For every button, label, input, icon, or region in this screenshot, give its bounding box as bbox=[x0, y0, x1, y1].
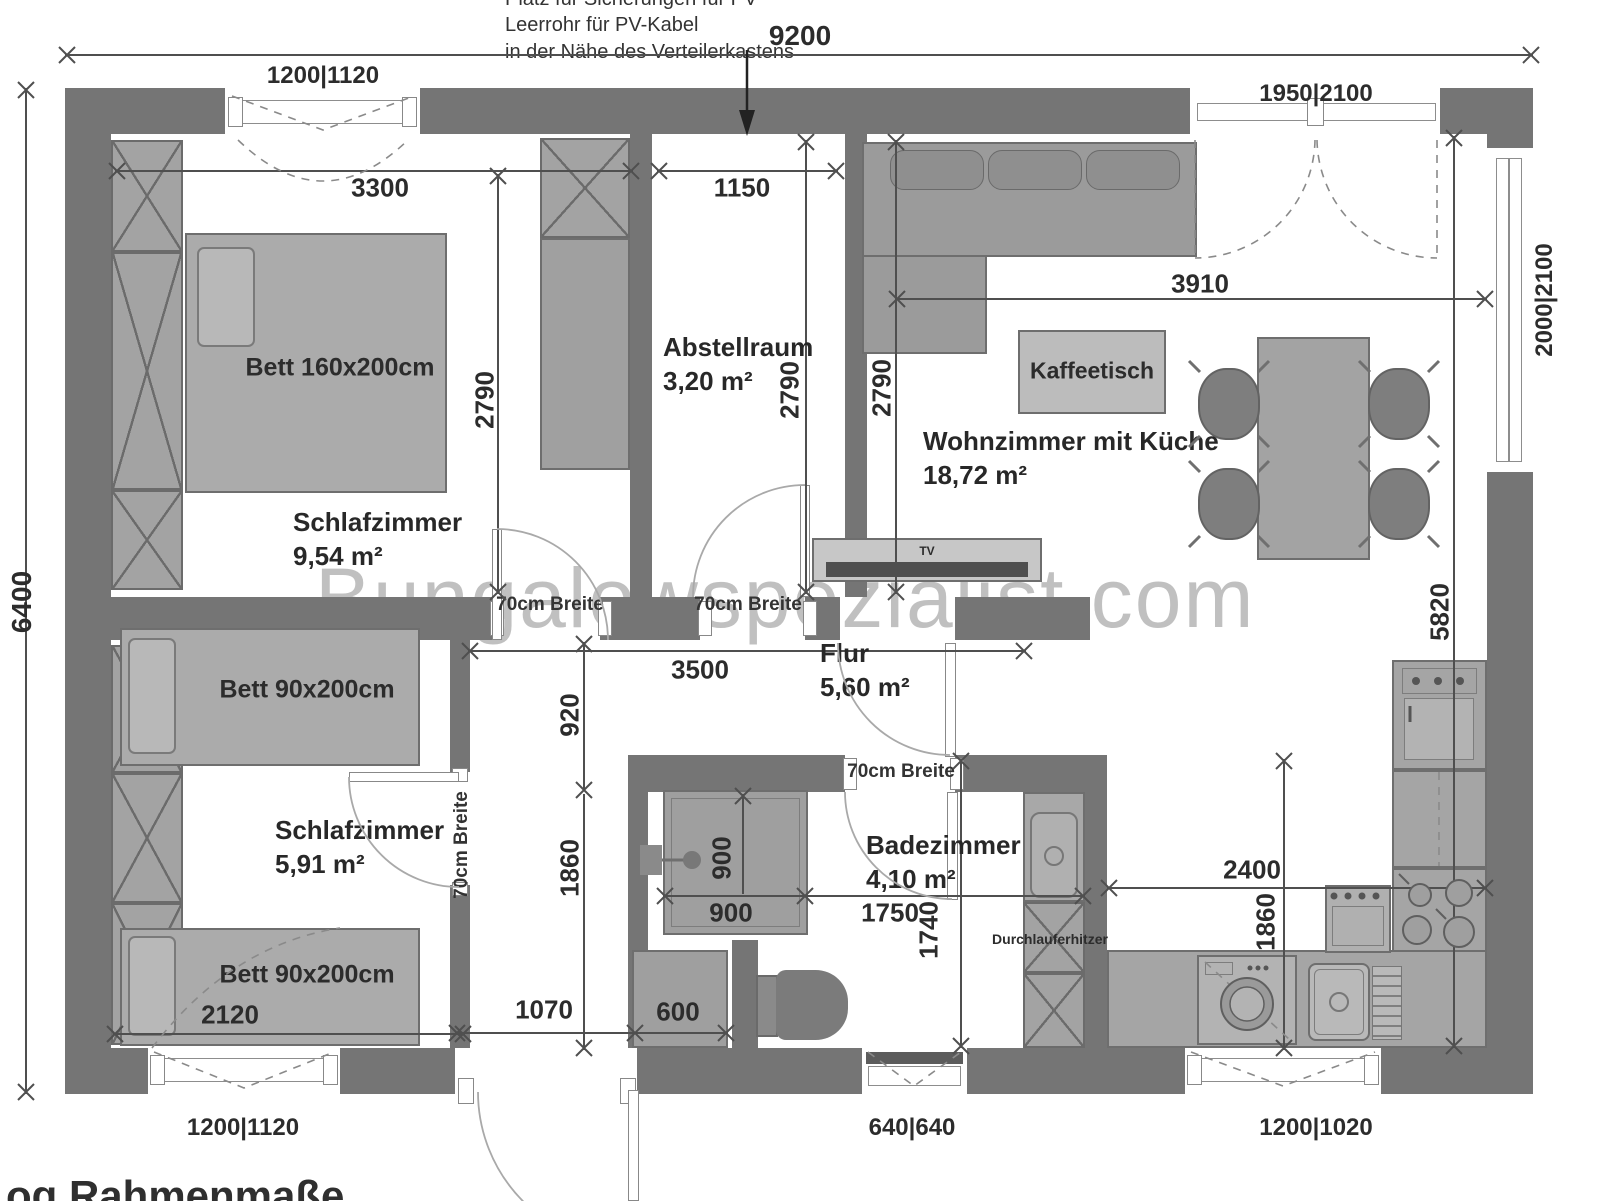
appliance-panel-icon bbox=[1402, 668, 1477, 694]
oven-tower-door-icon bbox=[1404, 698, 1474, 760]
dim: 3300 bbox=[351, 173, 409, 204]
door-width-label: 70cm Breite bbox=[496, 594, 604, 616]
sink-bowl-icon bbox=[1314, 969, 1364, 1035]
chair-icon bbox=[1368, 468, 1430, 540]
pv-note-line3: in der Nähe des Verteilerkastens bbox=[505, 39, 794, 65]
oven-door-icon bbox=[1332, 906, 1384, 946]
room-area: 5,60 m² bbox=[820, 670, 910, 704]
dim-total-width: 9200 bbox=[769, 20, 831, 52]
dim-line bbox=[1107, 887, 1487, 889]
pv-note-line2: Leerrohr für PV-Kabel bbox=[505, 12, 794, 38]
toilet-cistern-icon bbox=[756, 975, 778, 1037]
dim-line bbox=[960, 759, 962, 1048]
window-kitchen-frame bbox=[1199, 1058, 1367, 1082]
entrance-door-gap bbox=[455, 1048, 637, 1094]
cabinet-icon bbox=[540, 238, 630, 470]
washbasin-icon bbox=[1030, 812, 1078, 898]
wardrobe-icon bbox=[111, 140, 183, 252]
wall-bath-top-b bbox=[955, 755, 1107, 792]
window-right-mid-line bbox=[1508, 158, 1510, 462]
window-bottom-left-jamb-r bbox=[323, 1055, 338, 1085]
pv-note-line1: Platz für Sicherungen für PV bbox=[505, 0, 794, 12]
room-area: 5,91 m² bbox=[275, 847, 444, 881]
room-storage-label: Abstellraum 3,20 m² bbox=[663, 330, 813, 399]
dim: 1740 bbox=[914, 901, 945, 959]
drainer-icon bbox=[1372, 966, 1402, 1040]
wall-bath-top-a bbox=[628, 755, 845, 792]
dim-line bbox=[455, 1032, 728, 1034]
wardrobe-icon bbox=[540, 138, 630, 238]
dim: 600 bbox=[656, 997, 699, 1028]
sofa-cushion-icon bbox=[1086, 150, 1180, 190]
cooktop-icon bbox=[1392, 868, 1487, 960]
dim-line bbox=[742, 794, 744, 894]
door3-leaf bbox=[349, 772, 459, 782]
dim: 920 bbox=[555, 693, 586, 736]
pillow-icon bbox=[128, 936, 176, 1036]
dim-line bbox=[1283, 759, 1285, 1050]
entrance-door-leaf bbox=[628, 1090, 639, 1201]
bottom-note: og Rahmenmaße bbox=[6, 1172, 344, 1201]
room-area: 4,10 m² bbox=[866, 862, 1021, 896]
sofa-cushion-icon bbox=[988, 150, 1082, 190]
bed-single-label: Bett 90x200cm bbox=[219, 676, 394, 705]
room-bath-label: Badezimmer 4,10 m² bbox=[866, 828, 1021, 897]
wall-bath-right bbox=[1085, 792, 1107, 1048]
window-kitchen-jamb-r bbox=[1364, 1055, 1379, 1085]
washer-drawer-icon bbox=[1205, 962, 1233, 975]
dining-table-icon bbox=[1257, 337, 1370, 560]
fridge-icon bbox=[1392, 770, 1487, 868]
wall-hall-4 bbox=[955, 597, 1090, 640]
dim: 900 bbox=[707, 836, 738, 879]
dim: 2400 bbox=[1223, 855, 1281, 886]
chair-icon bbox=[1368, 368, 1430, 440]
room-name: Badezimmer bbox=[866, 828, 1021, 862]
floor-plan: Bungalowspezialist.com Platz für Sicheru… bbox=[0, 0, 1600, 1201]
room-name: Abstellraum bbox=[663, 330, 813, 364]
room-bedroom1-label: Schlafzimmer 9,54 m² bbox=[293, 505, 462, 574]
dim-line bbox=[113, 1033, 465, 1035]
wardrobe-icon bbox=[111, 490, 183, 590]
win-label: 2000|2100 bbox=[1531, 243, 1559, 357]
wall-bedroom2-a bbox=[450, 640, 470, 772]
wall-bedroom1-storage bbox=[630, 134, 652, 597]
door2-jamb-r bbox=[803, 601, 817, 636]
water-heater-label: Durchlauferhitzer bbox=[992, 931, 1108, 947]
shower-fitting-icon bbox=[640, 845, 662, 875]
water-heater-cabinet-icon bbox=[1023, 973, 1085, 1048]
toilet-icon bbox=[776, 970, 848, 1040]
wardrobe-icon bbox=[111, 252, 183, 490]
bed-single-label: Bett 90x200cm bbox=[219, 961, 394, 990]
dim: 1860 bbox=[1251, 893, 1282, 951]
room-name: Schlafzimmer bbox=[275, 813, 444, 847]
pillow-icon bbox=[128, 638, 176, 754]
wall-wc-divider bbox=[732, 940, 758, 1048]
win-label: 640|640 bbox=[869, 1114, 956, 1142]
dim: 1750 bbox=[861, 898, 919, 929]
window-kitchen-jamb-l bbox=[1187, 1055, 1202, 1085]
dim: 3910 bbox=[1171, 269, 1229, 300]
room-name: Flur bbox=[820, 636, 910, 670]
wall-left bbox=[65, 88, 111, 1094]
door-width-label: 70cm Breite bbox=[451, 791, 473, 899]
dim-line bbox=[468, 650, 1026, 652]
window-bath-frame bbox=[868, 1066, 961, 1086]
door-living-leaf bbox=[945, 643, 956, 757]
dim: 1150 bbox=[714, 173, 770, 204]
kitchen-counter-icon bbox=[1107, 950, 1487, 1048]
tv-label: TV bbox=[919, 544, 934, 558]
pillow-icon bbox=[197, 247, 255, 347]
door-width-label: 70cm Breite bbox=[694, 594, 802, 616]
dim: 5820 bbox=[1425, 583, 1456, 641]
dim: 2790 bbox=[867, 359, 898, 417]
dim-line bbox=[65, 54, 1533, 56]
dim-line bbox=[583, 794, 585, 1050]
door-label: 1950|2100 bbox=[1259, 80, 1373, 108]
dim: 3500 bbox=[671, 655, 729, 686]
coffee-table-label: Kaffeetisch bbox=[1030, 358, 1154, 385]
dim-total-height: 6400 bbox=[6, 571, 38, 633]
wall-hall-2 bbox=[600, 597, 700, 640]
room-bedroom2-label: Schlafzimmer 5,91 m² bbox=[275, 813, 444, 882]
window-bottom-left-jamb-l bbox=[150, 1055, 165, 1085]
door-width-label: 70cm Breite bbox=[847, 761, 955, 783]
window-top-left-jamb-l bbox=[228, 97, 243, 127]
bed-double-label: Bett 160x200cm bbox=[245, 354, 434, 383]
wardrobe-icon bbox=[111, 773, 183, 903]
dim: 2120 bbox=[201, 1000, 259, 1031]
dim: 2790 bbox=[470, 371, 501, 429]
room-living-label: Wohnzimmer mit Küche 18,72 m² bbox=[923, 424, 1219, 493]
win-label: 1200|1120 bbox=[187, 1114, 299, 1142]
window-top-left-frame bbox=[240, 100, 406, 124]
room-area: 18,72 m² bbox=[923, 458, 1219, 492]
sofa-cushion-icon bbox=[890, 150, 984, 190]
window-bottom-left-frame bbox=[162, 1058, 326, 1082]
room-area: 3,20 m² bbox=[663, 364, 813, 398]
win-label: 1200|1120 bbox=[267, 62, 379, 90]
window-top-left-jamb-r bbox=[402, 97, 417, 127]
wall-bedroom2-b bbox=[450, 885, 470, 1048]
room-name: Wohnzimmer mit Küche bbox=[923, 424, 1219, 458]
dim: 1070 bbox=[515, 995, 573, 1026]
room-name: Schlafzimmer bbox=[293, 505, 462, 539]
room-area: 9,54 m² bbox=[293, 539, 462, 573]
win-label: 1200|1020 bbox=[1259, 1114, 1373, 1142]
window-bath-sill bbox=[866, 1052, 963, 1064]
tv-bar-icon bbox=[826, 562, 1028, 577]
entrance-jamb-l bbox=[458, 1078, 474, 1104]
dim: 1860 bbox=[555, 839, 586, 897]
dim: 900 bbox=[709, 898, 752, 929]
room-hall-label: Flur 5,60 m² bbox=[820, 636, 910, 705]
